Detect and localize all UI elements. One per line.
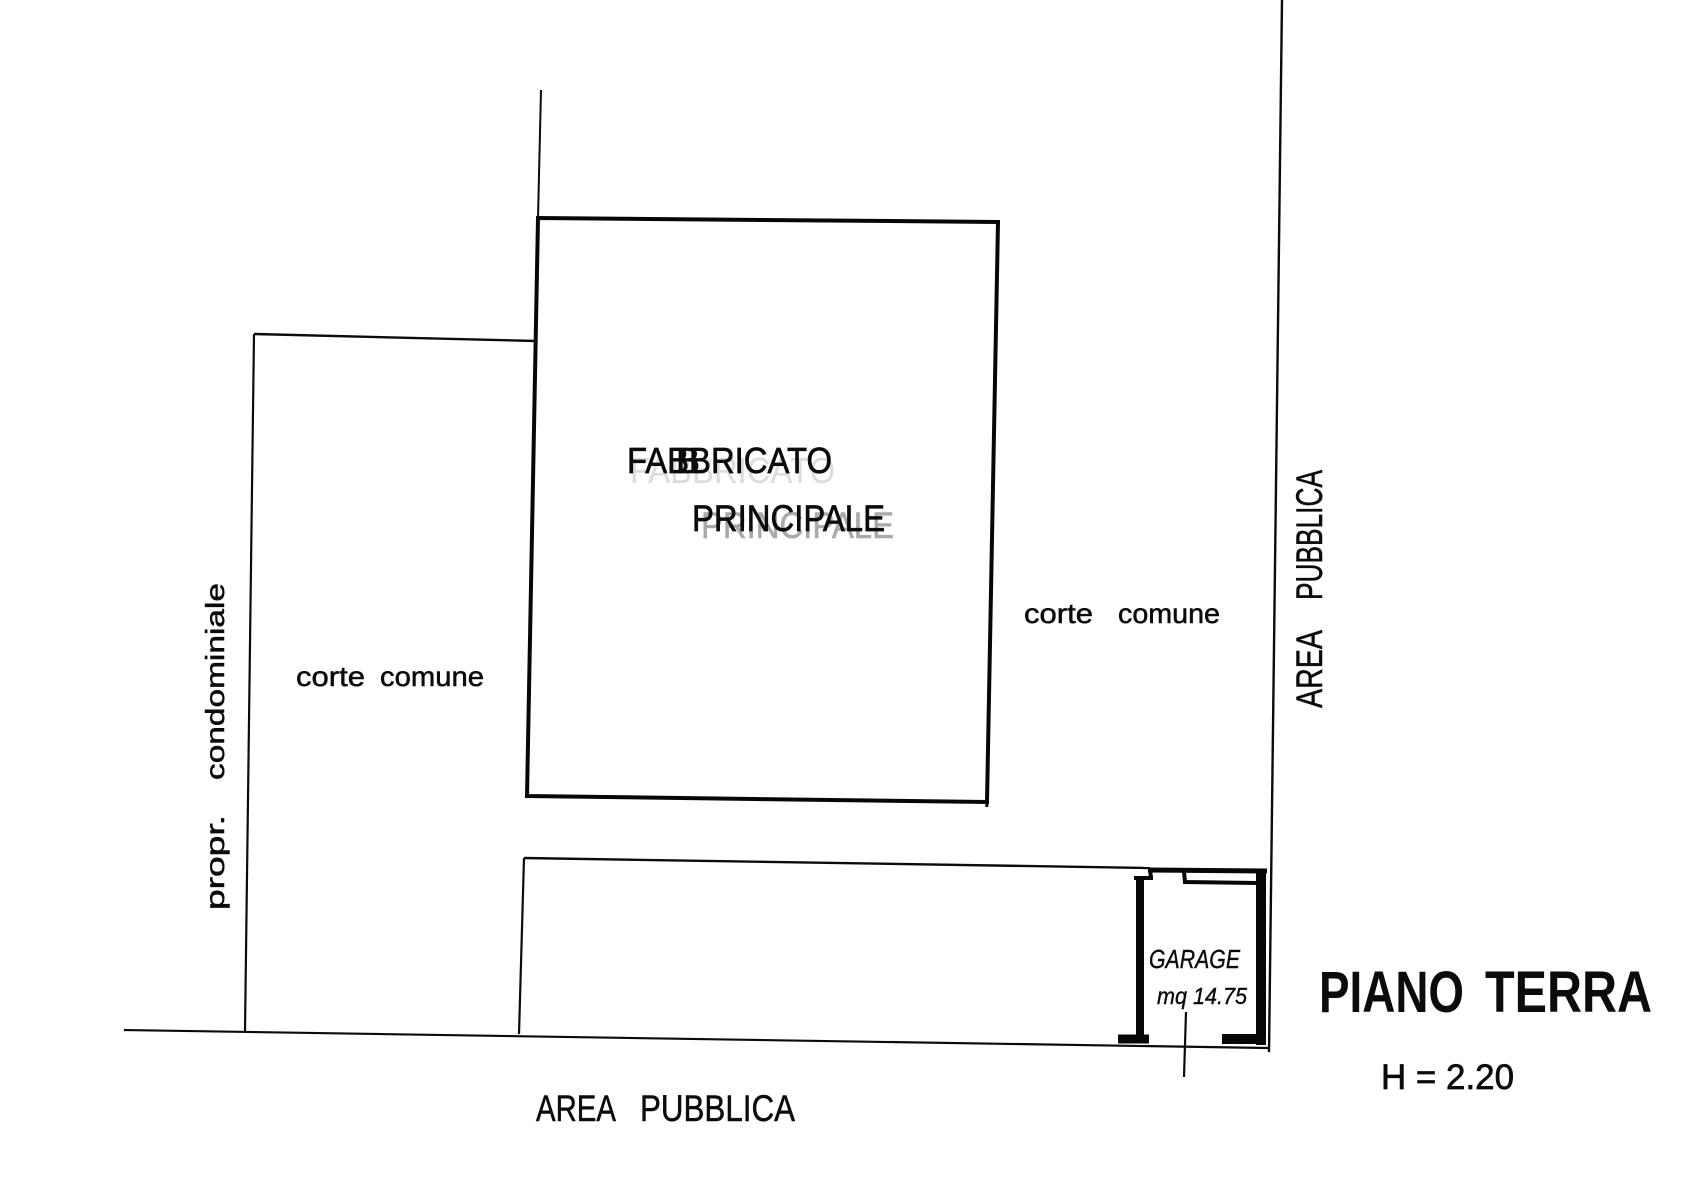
svg-text:mq 14.75: mq 14.75 <box>1157 983 1247 1009</box>
svg-text:AREA: AREA <box>1289 630 1330 708</box>
svg-text:PRINCIPALE: PRINCIPALE <box>692 498 885 539</box>
svg-text:PIANO: PIANO <box>1319 960 1464 1025</box>
svg-text:propr.: propr. <box>200 815 230 910</box>
svg-text:comune: comune <box>1118 598 1220 629</box>
svg-text:FABBRICATO: FABBRICATO <box>627 440 832 481</box>
svg-text:GARAGE: GARAGE <box>1149 944 1241 974</box>
svg-text:comune: comune <box>380 661 484 692</box>
svg-text:TERRA: TERRA <box>1485 960 1652 1025</box>
svg-text:corte: corte <box>296 661 365 692</box>
svg-text:H = 2.20: H = 2.20 <box>1381 1058 1514 1097</box>
svg-text:corte: corte <box>1024 598 1093 629</box>
svg-text:PUBBLICA: PUBBLICA <box>1289 470 1330 600</box>
svg-text:condominiale: condominiale <box>200 583 230 780</box>
svg-text:B: B <box>676 440 700 481</box>
svg-text:AREA: AREA <box>536 1088 616 1129</box>
svg-text:PUBBLICA: PUBBLICA <box>640 1088 795 1129</box>
